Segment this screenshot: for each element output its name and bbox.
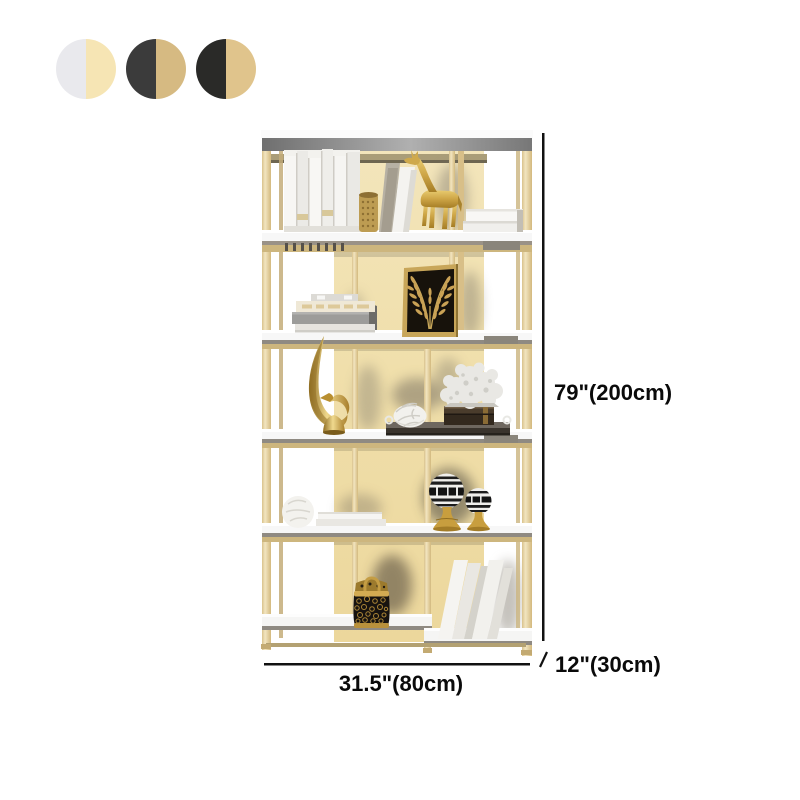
svg-text:12"(30cm): 12"(30cm) [555, 652, 661, 677]
svg-text:31.5"(80cm): 31.5"(80cm) [339, 671, 463, 696]
svg-text:79"(200cm): 79"(200cm) [554, 380, 672, 405]
